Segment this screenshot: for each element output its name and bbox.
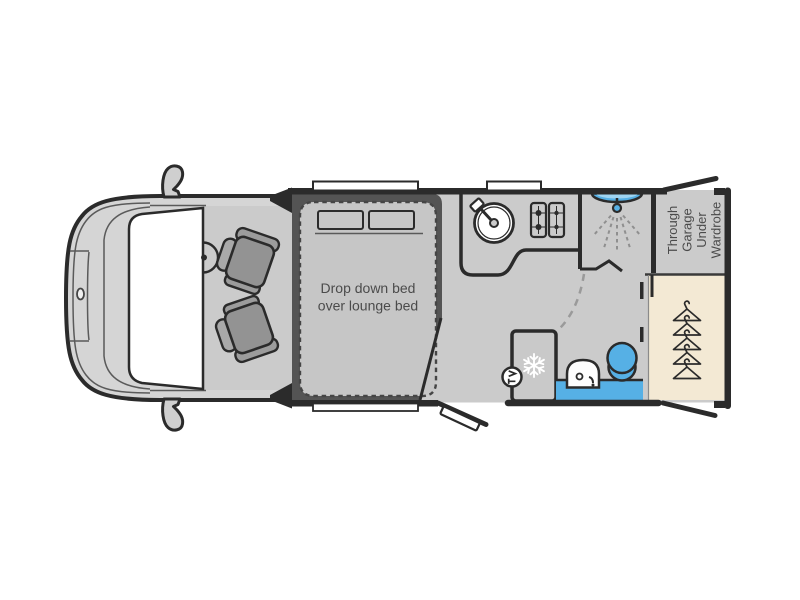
svg-text:Through: Through (665, 206, 680, 254)
svg-text:over lounge bed: over lounge bed (318, 298, 418, 314)
svg-text:Wardrobe: Wardrobe (709, 202, 724, 259)
svg-text:Garage: Garage (680, 208, 695, 251)
svg-text:Under: Under (694, 212, 709, 248)
svg-text:Drop down bed: Drop down bed (321, 280, 416, 296)
